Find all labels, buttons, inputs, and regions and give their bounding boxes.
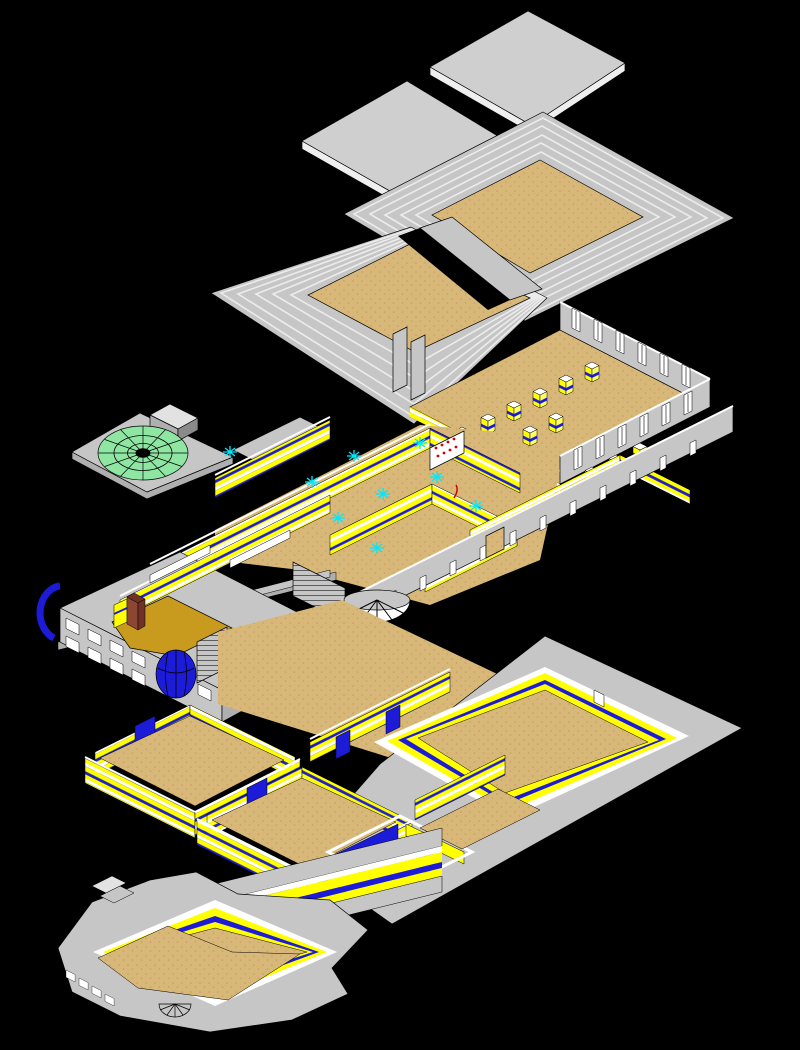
chimney: [127, 593, 145, 630]
pylon: [411, 335, 425, 400]
porch-blue-dome: [156, 650, 196, 698]
green-dome: [98, 426, 188, 480]
pylon: [393, 327, 407, 392]
dome-oculus: [136, 448, 151, 458]
exploded-axonometric-drawing: [0, 0, 800, 1050]
